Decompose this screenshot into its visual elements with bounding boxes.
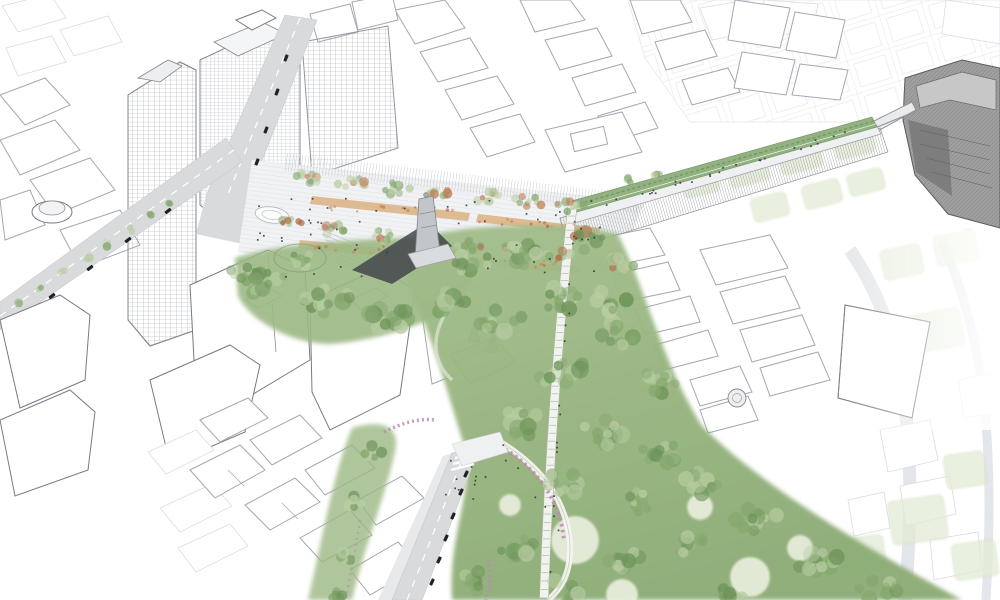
person [653,190,655,192]
tree-canopy [723,587,736,600]
tree-canopy [543,221,547,225]
person [573,236,575,238]
tree-canopy [543,264,545,266]
tree-canopy [566,197,574,205]
tree-canopy [517,200,524,207]
person [719,172,721,174]
tree-canopy [249,272,263,286]
tree-canopy [678,547,688,557]
tree-canopy [555,255,562,262]
tree-canopy [477,569,483,575]
person [317,222,319,224]
tree-canopy [601,438,614,451]
person [735,164,737,166]
tree-canopy [414,206,416,208]
person [553,495,555,497]
tree-canopy [712,480,722,490]
person [495,260,497,262]
person [359,221,361,223]
person [493,258,495,260]
tree-canopy [324,299,333,308]
person [526,213,528,215]
person [257,239,259,241]
tree-canopy [561,301,577,317]
person [386,252,388,254]
person [474,201,476,203]
tree-canopy [610,320,623,333]
tree-canopy [377,248,380,251]
tree-canopy [342,183,349,190]
person [558,405,560,407]
tree-canopy [555,201,560,206]
person [691,181,693,183]
tree-canopy [349,495,359,505]
tree-canopy [451,209,454,212]
tree-canopy [669,441,679,451]
person [361,276,363,278]
tree-canopy [628,261,638,271]
tree-canopy [627,179,634,186]
tree-canopy [313,178,320,185]
tree-canopy [264,269,272,277]
tree-canopy [147,211,154,218]
tree-canopy [866,575,878,587]
person [675,181,677,183]
person [503,444,505,446]
tree-canopy [578,236,585,243]
tree-canopy [608,306,617,315]
person [599,227,601,229]
tree-canopy [625,492,635,502]
tree-canopy [334,180,342,188]
person [475,480,477,482]
tree-canopy [167,201,173,207]
tree-canopy [520,418,537,435]
person [606,204,608,206]
tree-canopy [356,210,358,212]
tree-canopy [594,285,608,299]
person [544,272,546,274]
tree-canopy [366,440,377,451]
tree-canopy [519,246,529,256]
tree-canopy [127,224,133,230]
person [489,200,491,202]
person [575,238,577,240]
tree-canopy [374,228,380,234]
person [815,139,817,141]
person [759,159,761,161]
person [466,205,468,207]
tree-canopy [545,290,554,299]
person [564,340,566,342]
tree-canopy [651,171,659,179]
person [487,268,489,270]
person [517,467,519,469]
person [375,210,377,212]
tree-canopy [695,533,708,546]
person [485,476,487,478]
person [569,313,571,315]
tree-canopy [57,268,64,275]
tree-canopy [854,584,864,594]
tree-canopy [446,208,450,212]
person [800,148,802,150]
tree-canopy [480,195,485,200]
person [472,498,474,500]
tree-canopy [546,225,549,228]
tree-canopy [334,249,337,252]
tree-canopy [891,581,901,591]
tree-canopy [639,490,648,499]
tree-canopy [230,270,239,279]
tree-canopy [317,302,325,310]
tree-canopy [331,209,333,211]
tree-canopy [575,358,589,372]
tree-canopy [299,291,313,305]
tree-canopy [305,174,310,179]
tree-canopy [369,251,372,254]
tree-canopy [609,421,619,431]
person [456,478,458,480]
tree-canopy [483,252,492,261]
person [556,447,558,449]
tree-canopy [324,245,327,248]
tree-canopy [540,263,543,266]
tree-canopy [496,323,513,340]
tree-canopy [566,468,579,481]
person [309,209,311,211]
tree-canopy [510,220,513,223]
person [550,571,552,573]
person [556,451,558,453]
person [445,494,447,496]
person [259,232,261,234]
tree-canopy [519,193,526,200]
tree-canopy [333,205,336,208]
tree-canopy [621,553,636,568]
tree-canopy [579,244,590,255]
person [572,243,574,245]
person [535,497,537,499]
person [458,223,460,225]
person [594,237,596,239]
person [356,244,358,246]
person [568,283,570,285]
tree-canopy [526,198,532,204]
tree-canopy [518,545,534,561]
tree-canopy [595,328,609,342]
person [281,240,283,242]
tree-canopy [519,409,529,419]
person [549,258,551,260]
person [580,228,582,230]
tree-canopy [660,455,675,470]
person [281,237,283,239]
person [587,239,589,241]
person [553,515,555,517]
tree-canopy [380,319,391,330]
tree-canopy [453,242,460,249]
tree-canopy [537,201,546,210]
rendering-canvas [0,0,1000,600]
person [310,234,312,236]
tree-canopy [633,507,643,517]
tree-canopy [402,207,404,209]
person [764,158,766,160]
tree-canopy [497,547,505,555]
tree-canopy [544,303,552,311]
tree-canopy [311,287,325,301]
tree-canopy [379,205,382,208]
tree-canopy [482,323,492,333]
person [655,192,657,194]
tree-canopy [647,448,660,461]
tree-canopy [543,479,555,491]
person [474,484,476,486]
person [505,460,507,462]
person [680,182,682,184]
person [565,325,567,327]
person [354,249,356,251]
tree-canopy [358,500,365,507]
tree-canopy [307,179,313,185]
tree-canopy [503,407,515,419]
person [709,175,711,177]
tree-canopy [829,549,845,565]
tree-canopy [543,260,545,262]
tree-canopy [509,316,519,326]
garden-parterre [951,539,1000,581]
person [574,221,576,223]
tree-canopy [559,358,567,366]
person [475,476,477,478]
tree-canopy [444,193,449,198]
person [308,220,310,222]
tree-canopy [321,224,328,231]
tree-canopy [554,260,557,263]
person [471,466,473,468]
tree-canopy [589,235,603,249]
person [285,276,287,278]
person [556,442,558,444]
tree-canopy [376,447,387,458]
person [810,145,812,147]
tree-canopy [579,200,588,209]
person [649,193,651,195]
tree-canopy [648,385,661,398]
tree-canopy [573,223,576,226]
person [467,473,469,475]
person [555,214,557,216]
tree-canopy [346,175,354,183]
tree-canopy [344,292,355,303]
person [312,198,314,200]
person [345,198,347,200]
person [722,167,724,169]
tree-canopy [489,303,502,316]
tree-canopy [580,422,590,432]
tree-canopy [769,508,784,523]
tree-canopy [361,305,378,322]
tree-canopy [359,177,369,187]
person [263,235,265,237]
person [404,208,406,210]
person [833,136,835,138]
tree-canopy [356,247,358,249]
person [844,131,846,133]
person [321,222,323,224]
person [319,247,321,249]
person [336,229,338,231]
tree-canopy [567,485,583,501]
tree-canopy [337,547,349,559]
tree-canopy [518,259,529,270]
tree-canopy [501,223,504,226]
tree-canopy [334,220,344,230]
person [310,222,312,224]
person [642,193,644,195]
tree-canopy [352,251,355,254]
tree-canopy [802,562,816,576]
tree-canopy [660,371,670,381]
tree-canopy [437,294,455,312]
tree-canopy [387,232,393,238]
person [516,244,518,246]
person [651,192,653,194]
person [559,211,561,213]
tree-canopy [388,187,396,195]
tree-canopy [389,179,395,185]
tree-canopy [464,237,473,246]
tree-canopy [617,339,629,351]
tree-canopy [602,554,616,568]
tree-canopy [396,181,402,187]
tree-canopy [360,449,369,458]
tree-canopy [671,379,680,388]
person [450,460,452,462]
tree-canopy [293,172,301,180]
tree-canopy [473,582,483,592]
tree-canopy [803,545,820,562]
tree-canopy [38,285,44,291]
tree-canopy [882,583,890,591]
tree-canopy [628,336,637,345]
tree-canopy [506,218,509,221]
tree-canopy [619,292,634,307]
tree-canopy [495,192,502,199]
masterplan-aerial-rendering [0,0,1000,600]
tree-canopy [728,512,744,528]
dome-rotunda [728,389,746,407]
tree-canopy [406,184,414,192]
tree-canopy [681,530,695,544]
tree-canopy [455,257,468,270]
person [559,414,561,416]
tree-canopy [286,221,292,227]
tree-canopy [678,471,694,487]
person [794,147,796,149]
tree-canopy [603,429,612,438]
person [591,200,593,202]
tree-canopy [816,561,827,572]
tree-canopy [16,300,23,307]
tree-canopy [564,208,572,216]
tree-canopy [550,225,553,228]
tree-canopy [83,254,91,262]
tree-canopy [643,504,652,513]
garden-parterre [943,450,987,489]
tree-canopy [382,245,385,248]
tree-canopy [606,253,619,266]
person [553,505,555,507]
tree-canopy [341,228,347,234]
tree-canopy [550,261,552,263]
person [484,221,486,223]
tree-canopy [406,209,410,213]
tree-canopy [749,526,758,535]
person [454,488,456,490]
tree-canopy [242,263,252,273]
tree-canopy [380,238,388,246]
tree-canopy [547,573,562,588]
tree-canopy [748,514,758,524]
person [544,506,546,508]
tree-canopy [520,535,529,544]
person [537,219,539,221]
tree-canopy [529,247,543,261]
tree-canopy [394,304,408,318]
tree-canopy [534,266,537,269]
tree-canopy [444,187,451,194]
person [581,239,583,241]
tree-canopy [478,221,481,224]
person [817,143,819,145]
garden-parterre [887,494,949,545]
tree-canopy [544,372,556,384]
person [327,207,329,209]
tree-canopy [538,221,541,224]
tree-canopy [477,244,484,251]
tree-canopy [562,286,578,302]
tree-canopy [638,444,648,454]
person [533,261,535,263]
person [593,270,595,272]
person [291,198,293,200]
person [458,489,460,491]
tree-canopy [504,260,506,262]
tree-canopy [103,242,112,251]
tree-canopy [329,206,333,210]
tree-canopy [552,263,555,266]
person [709,174,711,176]
tree-canopy [298,220,304,226]
tree-canopy [456,299,465,308]
tree-canopy [290,257,296,263]
tree-canopy [530,223,533,226]
person [615,199,617,201]
person [258,205,260,207]
tree-canopy [396,190,403,197]
tree-canopy [485,187,494,196]
person [447,206,449,208]
person [313,273,315,275]
person [558,530,560,532]
person [340,266,342,268]
tree-canopy [641,368,652,379]
person [675,184,677,186]
